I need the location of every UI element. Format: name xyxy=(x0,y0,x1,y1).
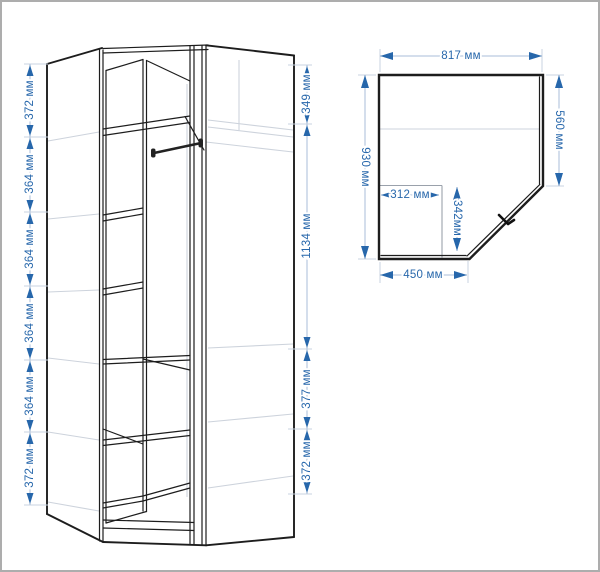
dimension-label: 312 мм xyxy=(390,189,429,201)
left-dimension-chain: 372 мм 364 мм 364 мм 364 мм 364 мм 372 м… xyxy=(24,64,36,505)
inner-width-dimension: 312 мм xyxy=(381,189,439,201)
dimension-label: 372 мм xyxy=(24,448,36,487)
dimension-label: 450 мм xyxy=(403,269,442,281)
bottom-width-dimension: 450 мм xyxy=(380,269,467,281)
front-view-clothes-rod xyxy=(151,139,203,158)
left-depth-dimension: 930 мм xyxy=(359,75,371,259)
dimension-label: 364 мм xyxy=(24,303,36,342)
dimension-label: 1134 мм xyxy=(301,213,313,258)
dimension-label: 364 мм xyxy=(24,229,36,268)
dimension-label: 560 мм xyxy=(553,110,565,149)
top-view-extension-lines xyxy=(358,49,564,283)
dimension-label: 372 мм xyxy=(301,441,313,480)
front-view-cabinet-outline xyxy=(47,45,294,545)
front-view-ghost-lines xyxy=(48,60,293,511)
top-width-dimension: 817 мм xyxy=(380,50,542,62)
dimension-label: 342мм xyxy=(451,200,463,236)
dimension-label: 817 мм xyxy=(441,50,480,62)
drawing-page: { "title": "Corner wardrobe technical dr… xyxy=(0,0,600,572)
inner-depth-dimension: 342мм xyxy=(451,187,463,251)
right-dimension-chain: 349 мм 1134 мм 377 мм 372 мм xyxy=(301,65,313,494)
dimension-label: 930 мм xyxy=(359,147,371,186)
rod-end-bracket xyxy=(151,149,156,158)
front-view-drawing xyxy=(24,45,312,545)
rod-end-bracket xyxy=(199,139,204,148)
wardrobe-technical-drawing: 372 мм 364 мм 364 мм 364 мм 364 мм 372 м… xyxy=(2,2,598,570)
dimension-label: 349 мм xyxy=(301,74,313,113)
dimension-label: 372 мм xyxy=(24,80,36,119)
dimension-label: 364 мм xyxy=(24,376,36,415)
top-view-drawing: 817 мм 930 мм 560 мм 312 мм xyxy=(358,49,565,283)
dimension-label: 377 мм xyxy=(301,369,313,408)
front-view-extension-lines xyxy=(24,64,312,505)
front-view-shelves xyxy=(103,116,204,531)
dimension-label: 364 мм xyxy=(24,154,36,193)
right-depth-dimension: 560 мм xyxy=(553,75,565,186)
